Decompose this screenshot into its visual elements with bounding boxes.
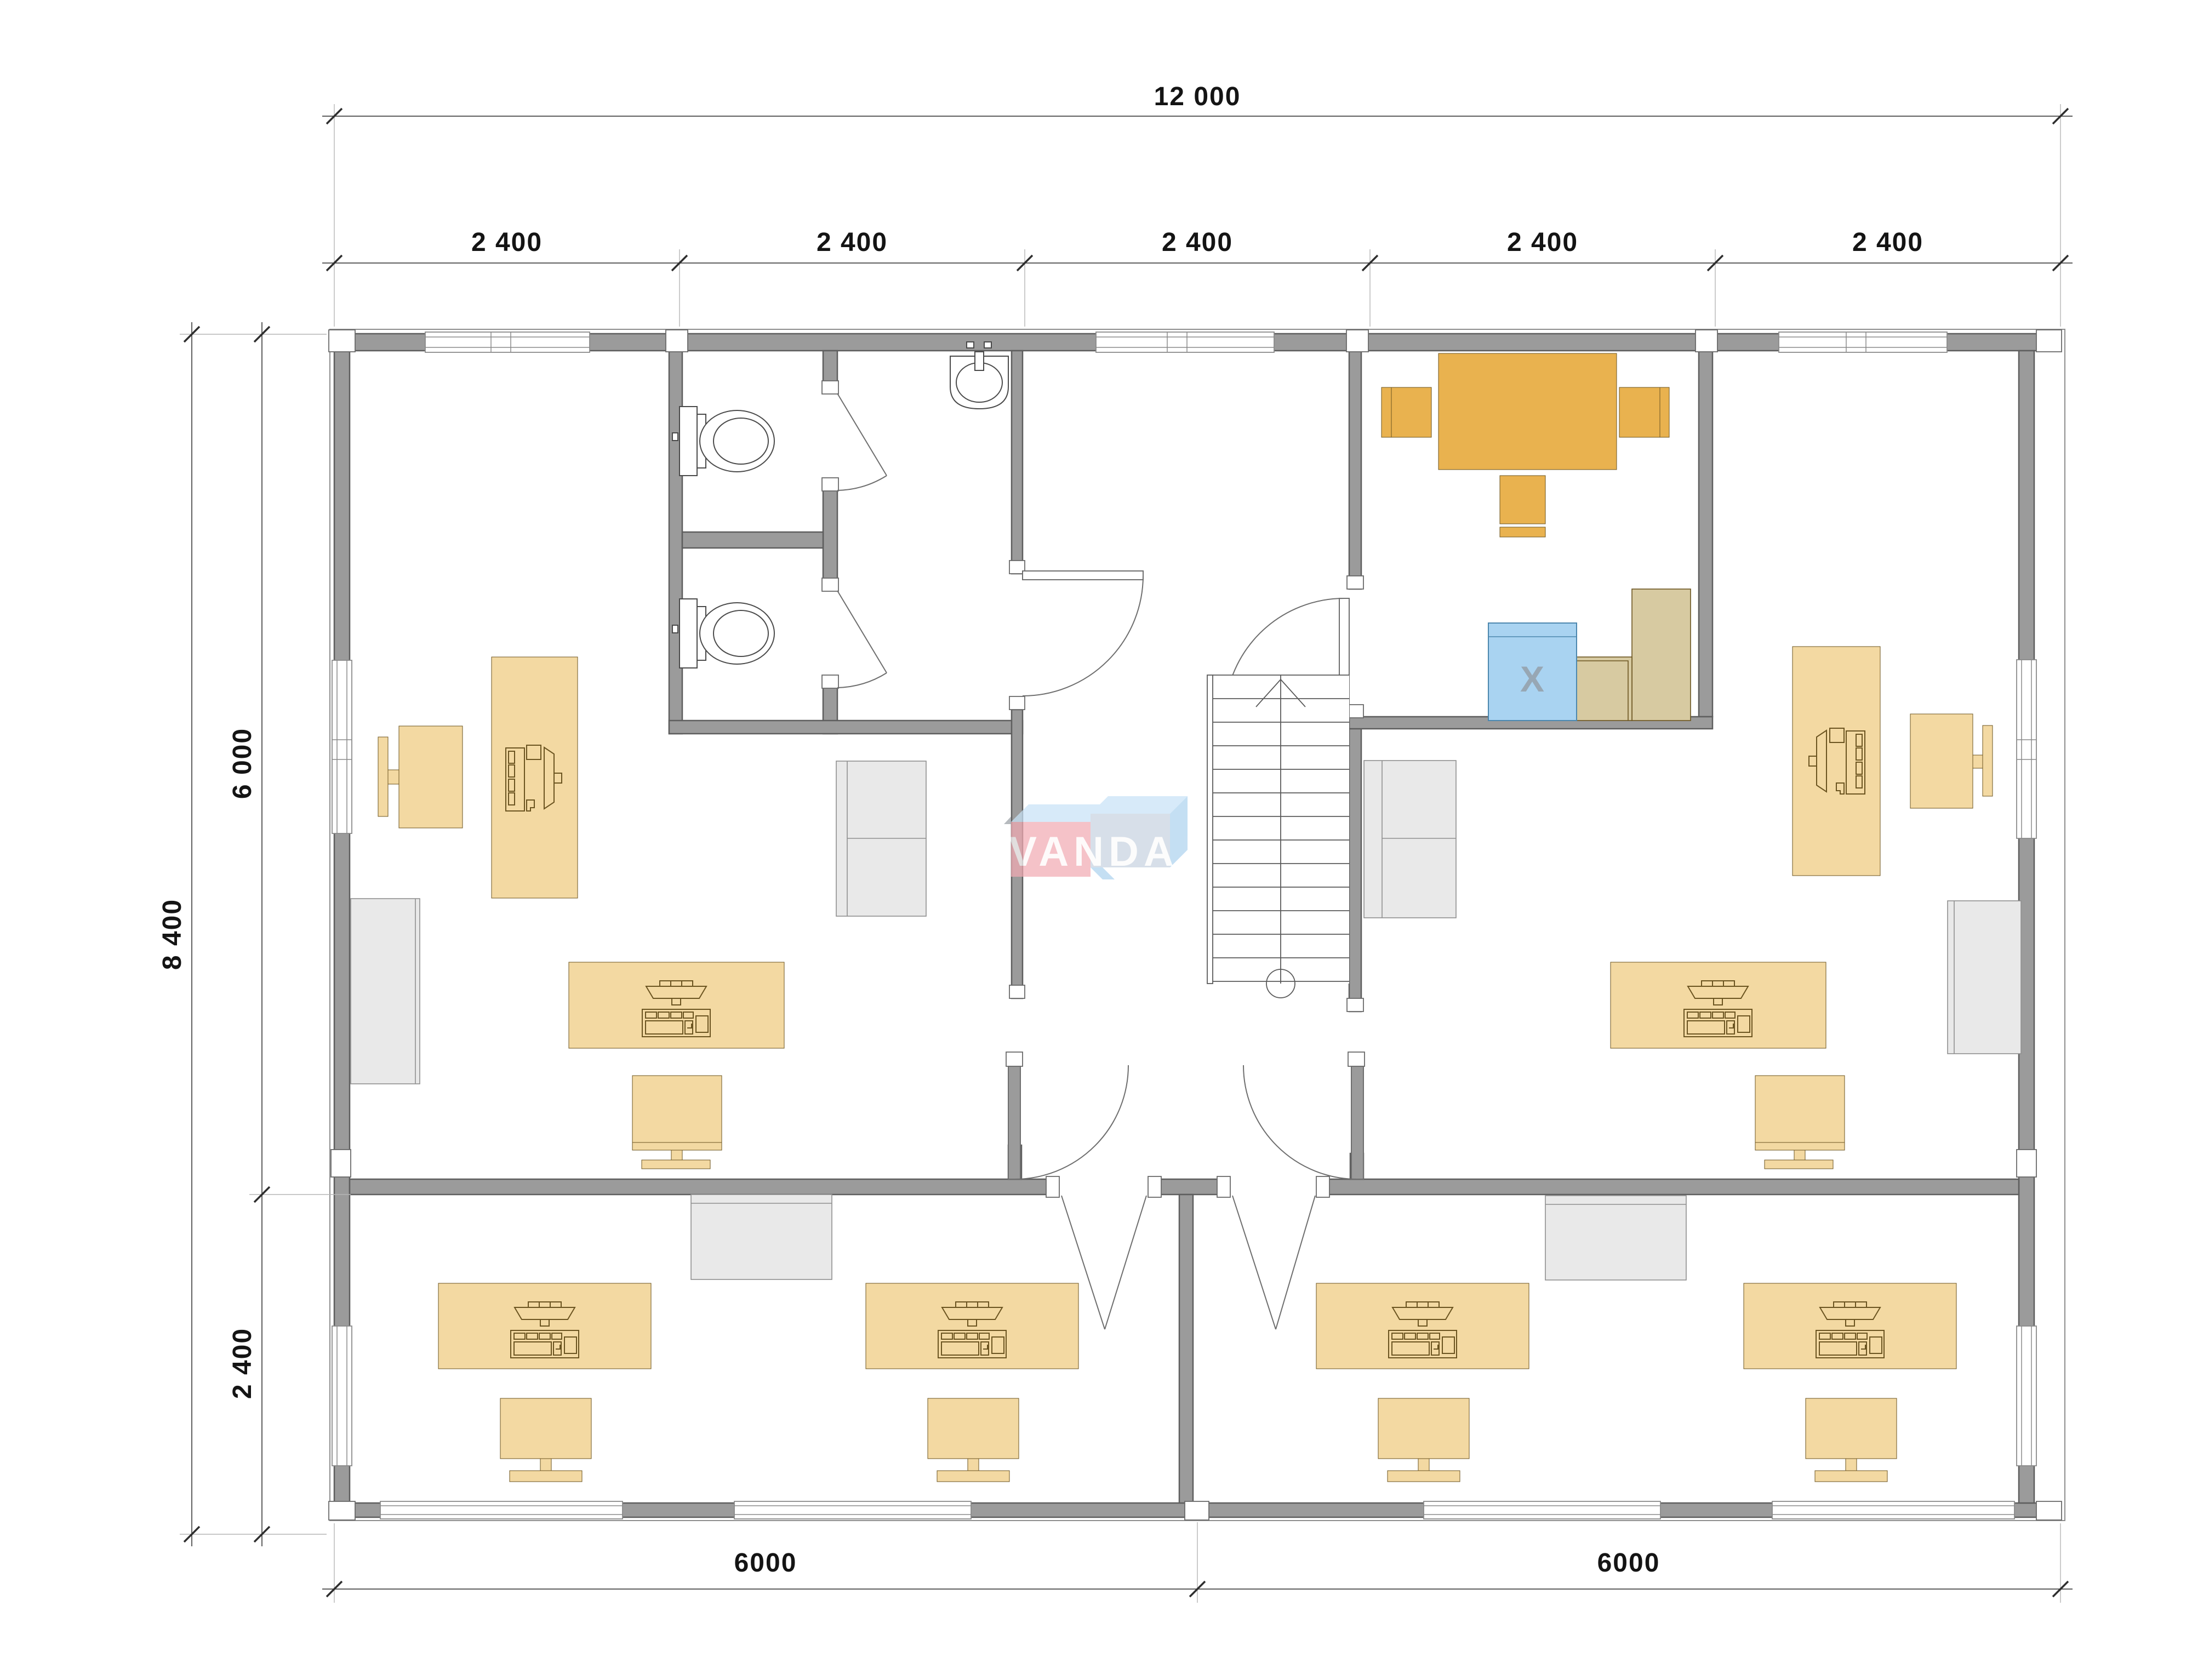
window-top-1 [425,332,590,352]
chair-bottom-2 [928,1398,1019,1459]
cabinet-right-wall [1948,901,2021,1054]
interior-wall-vertical-center [1179,1195,1193,1503]
chair-left-office-2 [632,1076,722,1142]
dim-bottom-left: 6000 [734,1548,797,1578]
wc-wall-right-upper [1012,351,1023,574]
dim-left-upper: 6 000 [228,728,257,799]
chair-bottom-1 [500,1398,591,1459]
meeting-chair-bottom [1500,476,1545,524]
chair-bottom-3 [1378,1398,1469,1459]
wc-divider-mid [823,490,837,591]
dim-bay-1: 2 400 [471,228,543,257]
toilet-icon-2 [672,599,774,668]
door-arc-icon-stall-2 [837,591,887,688]
wc-stall-divider [682,532,823,548]
chair-left-office-1 [399,726,463,828]
kitchen-counter-vertical [1632,589,1691,721]
desk-left-office-tall [492,657,578,898]
watermark-text: VANDA [1009,828,1179,875]
meeting-room-furniture [1382,353,1669,537]
cabinet-left-wall [351,899,420,1084]
meeting-wall-right [1699,351,1713,717]
door-arc-icon-left-office [1008,1065,1128,1179]
kitchen-counter-horizontal [1575,657,1632,721]
window-left-1 [332,660,352,833]
dim-bay-2: 2 400 [817,228,888,257]
interior-wall-horizontal-right [1317,1179,2019,1195]
toilet-icon-1 [672,407,774,476]
kitchen-area: X [1488,589,1691,721]
wc-wall-bottom [669,721,1023,734]
dim-left-total: 8 400 [158,899,187,970]
floor-plan-page: { "dimensions": { "top_total": "12 000",… [0,0,2192,1680]
desk-right-office-tall [1793,647,1880,876]
window-bottom-1 [380,1501,623,1519]
stair-wall-right [1349,718,1361,1012]
interior-wall-horizontal-left [350,1179,1059,1195]
window-bottom-4 [1772,1501,2014,1519]
cabinet-right-office [1364,761,1456,918]
dim-left-lower: 2 400 [228,1328,257,1399]
door-arc-icon-right-office [1243,1065,1363,1179]
window-right-1 [2017,660,2036,838]
dim-bay-4: 2 400 [1507,228,1578,257]
window-right-2 [2017,1326,2036,1466]
meeting-wall-left-upper [1349,351,1361,589]
meeting-chair-left [1382,387,1431,437]
floor-plan-drawing: X VANDA [0,0,2192,1680]
table-bottom-right-office [1545,1196,1686,1280]
meeting-chair-right [1619,387,1669,437]
dim-bottom-right: 6000 [1597,1548,1660,1578]
sanitary-fixtures [672,342,1008,668]
chair-right-office-1 [1910,714,1973,808]
window-bottom-3 [1424,1501,1660,1519]
table-bottom-left-office [691,1195,832,1279]
door-arc-icon-washroom [1023,571,1143,696]
chair-right-office-2 [1755,1076,1845,1142]
door-arc-icon-stall-1 [837,393,887,490]
stairs-icon [1207,675,1349,998]
window-bottom-2 [734,1501,971,1519]
chair-bottom-4 [1806,1398,1897,1459]
sink-icon [950,342,1008,409]
meeting-table [1438,353,1617,470]
window-left-2 [332,1326,352,1466]
dim-bay-5: 2 400 [1852,228,1923,257]
appliance-label: X [1520,659,1544,699]
vanda-watermark-logo: VANDA [1004,796,1188,879]
dim-bay-3: 2 400 [1162,228,1233,257]
window-top-3 [1779,332,1947,352]
dim-top-total: 12 000 [1154,82,1241,111]
window-top-2 [1096,332,1274,352]
